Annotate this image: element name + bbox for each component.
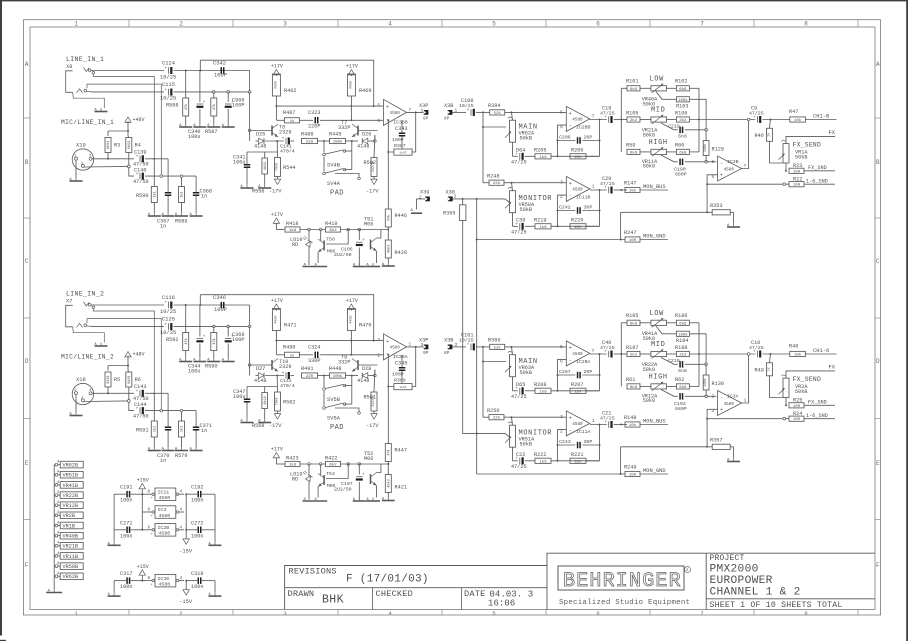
svg-text:2: 2	[711, 395, 714, 400]
svg-text:C342: C342	[213, 61, 226, 67]
svg-text:R205: R205	[534, 148, 546, 154]
svg-text:6n8: 6n8	[678, 368, 687, 374]
svg-text:R445: R445	[329, 132, 341, 138]
svg-text:PAD: PAD	[330, 190, 344, 198]
svg-text:R389: R389	[394, 378, 406, 384]
svg-text:1: 1	[592, 419, 595, 424]
svg-text:47/25: 47/25	[600, 181, 615, 187]
svg-text:4580: 4580	[159, 581, 171, 587]
svg-text:9P: 9P	[423, 351, 429, 356]
svg-text:Specialized Studio Equipment: Specialized Studio Equipment	[559, 599, 690, 607]
svg-text:5: 5	[560, 111, 563, 116]
svg-text:50kB: 50kB	[520, 207, 532, 213]
svg-text:F: F	[876, 562, 880, 569]
svg-text:6k81: 6k81	[127, 375, 132, 383]
svg-text:CHECKED: CHECKED	[376, 589, 414, 599]
svg-text:4580: 4580	[572, 188, 583, 193]
svg-text:47/25: 47/25	[600, 345, 615, 351]
svg-text:R147: R147	[624, 181, 636, 187]
svg-text:+: +	[569, 111, 572, 117]
svg-text:FX_SND: FX_SND	[808, 165, 827, 171]
svg-text:R470: R470	[359, 323, 371, 329]
svg-text:3: 3	[711, 409, 714, 414]
svg-text:1-6_SND: 1-6_SND	[806, 413, 828, 419]
svg-text:100P: 100P	[214, 73, 227, 79]
svg-text:1k6: 1k6	[539, 225, 547, 230]
svg-text:47/25: 47/25	[749, 111, 764, 117]
svg-text:+: +	[720, 407, 723, 413]
svg-text:2k2: 2k2	[630, 353, 638, 358]
svg-text:100k: 100k	[678, 98, 688, 103]
svg-text:3: 3	[560, 181, 563, 186]
svg-text:B: B	[25, 159, 29, 166]
svg-text:R587: R587	[205, 129, 217, 135]
svg-text:1k: 1k	[290, 353, 295, 358]
svg-text:20P: 20P	[584, 135, 593, 141]
svg-text:-: -	[569, 427, 572, 433]
svg-text:R589: R589	[175, 219, 187, 225]
svg-text:+: +	[151, 515, 153, 519]
svg-text:C219: C219	[668, 123, 680, 129]
svg-text:SV4B: SV4B	[327, 163, 341, 169]
svg-text:R101: R101	[626, 79, 638, 85]
svg-text:+: +	[151, 584, 153, 588]
svg-text:MIC/LINE_IN_1: MIC/LINE_IN_1	[61, 119, 114, 126]
svg-text:47k: 47k	[387, 215, 392, 221]
svg-text:47k: 47k	[212, 338, 217, 344]
svg-text:50kB: 50kB	[795, 389, 807, 395]
svg-text:IC3BA: IC3BA	[393, 354, 408, 360]
svg-text:A: A	[25, 61, 29, 68]
svg-text:8k2: 8k2	[329, 228, 337, 233]
svg-text:C: C	[876, 258, 880, 265]
svg-text:FX_SND: FX_SND	[808, 400, 827, 406]
svg-text:C116: C116	[162, 295, 175, 301]
svg-text:+: +	[569, 416, 572, 422]
svg-text:6k81: 6k81	[106, 375, 111, 383]
svg-text:VR51B: VR51B	[63, 473, 79, 479]
svg-text:220: 220	[306, 375, 314, 379]
svg-text:1uFF: 1uFF	[399, 152, 406, 155]
svg-text:C115: C115	[162, 82, 175, 88]
svg-text:E: E	[876, 460, 880, 467]
svg-text:R387: R387	[394, 143, 406, 149]
svg-text:3: 3	[560, 415, 563, 420]
svg-text:D: D	[876, 358, 880, 365]
svg-text:47k: 47k	[184, 338, 189, 344]
svg-text:VR2B: VR2B	[63, 513, 75, 519]
svg-text:R222: R222	[534, 452, 546, 458]
svg-text:4k99: 4k99	[348, 81, 353, 89]
svg-text:2: 2	[560, 195, 563, 200]
svg-text:-: -	[569, 357, 572, 363]
svg-text:IC2BA: IC2BA	[576, 359, 591, 365]
svg-text:2: 2	[419, 196, 422, 201]
svg-text:47/25: 47/25	[600, 416, 615, 422]
svg-text:1k8: 1k8	[289, 228, 297, 233]
svg-text:2k2: 2k2	[630, 118, 638, 123]
svg-text:1k1: 1k1	[153, 191, 158, 197]
svg-text:100P: 100P	[232, 103, 244, 109]
svg-text:C124: C124	[162, 61, 175, 67]
svg-text:5: 5	[560, 345, 563, 350]
svg-text:R501: R501	[364, 395, 376, 401]
svg-text:IC2B: IC2B	[158, 525, 170, 531]
svg-text:47/25: 47/25	[511, 464, 527, 470]
svg-text:R208: R208	[534, 382, 546, 388]
svg-text:4148: 4148	[254, 378, 266, 384]
svg-text:VR62B: VR62B	[63, 463, 79, 469]
svg-text:R185: R185	[626, 313, 638, 319]
svg-text:R62: R62	[675, 377, 684, 383]
svg-text:D: D	[25, 358, 29, 365]
svg-text:4580: 4580	[390, 111, 401, 116]
svg-text:4: 4	[388, 21, 392, 28]
svg-text:-: -	[569, 193, 572, 199]
svg-text:-17V: -17V	[366, 423, 379, 429]
svg-text:4k99: 4k99	[273, 81, 278, 89]
svg-text:E: E	[25, 460, 29, 467]
svg-text:R447: R447	[395, 448, 407, 454]
svg-text:10k: 10k	[794, 118, 802, 123]
svg-text:+: +	[386, 339, 389, 345]
svg-text:C346: C346	[213, 295, 226, 301]
svg-text:100: 100	[793, 418, 801, 422]
svg-text:PROJECT: PROJECT	[710, 554, 745, 563]
svg-text:MON_BUS: MON_BUS	[643, 184, 666, 190]
svg-text:R544: R544	[283, 165, 295, 171]
svg-text:R106: R106	[675, 110, 687, 116]
svg-text:50kB: 50kB	[520, 370, 532, 376]
svg-text:VR22B: VR22B	[63, 493, 79, 499]
svg-text:30P: 30P	[584, 439, 593, 445]
svg-text:B: B	[876, 159, 880, 166]
svg-text:R471: R471	[284, 323, 296, 329]
svg-text:+: +	[386, 104, 389, 110]
svg-text:50kB: 50kB	[795, 154, 807, 160]
svg-text:X7: X7	[66, 299, 72, 305]
svg-text:C206: C206	[559, 135, 571, 141]
svg-text:4k99: 4k99	[263, 396, 268, 404]
svg-text:4148: 4148	[254, 144, 266, 150]
svg-text:1k1: 1k1	[153, 426, 158, 432]
svg-text:R355: R355	[443, 211, 455, 217]
svg-text:100k: 100k	[333, 374, 343, 379]
svg-text:R502: R502	[364, 160, 376, 166]
svg-text:FX: FX	[829, 130, 836, 136]
svg-text:5: 5	[492, 21, 496, 28]
svg-text:1k1: 1k1	[180, 191, 185, 197]
svg-text:1k: 1k	[767, 367, 772, 371]
svg-text:+: +	[569, 181, 572, 187]
svg-text:R591: R591	[136, 428, 148, 434]
svg-text:CHANNEL 1 & 2: CHANNEL 1 & 2	[710, 587, 801, 599]
svg-text:SV5A: SV5A	[327, 416, 341, 422]
svg-text:LINE_IN_2: LINE_IN_2	[66, 291, 104, 298]
svg-text:4580: 4580	[390, 346, 401, 351]
svg-text:RD: RD	[292, 477, 298, 483]
svg-text:T53: T53	[326, 471, 335, 477]
svg-text:DATE: DATE	[464, 589, 485, 599]
svg-text:VR1B: VR1B	[63, 523, 75, 529]
svg-text:100u: 100u	[233, 394, 245, 400]
svg-text:50k0: 50k0	[643, 367, 655, 373]
svg-text:22k: 22k	[493, 181, 501, 186]
svg-text:10/25: 10/25	[160, 75, 176, 81]
svg-text:45k3: 45k3	[387, 245, 392, 253]
svg-text:SHEET 1 OF 10 SHEETS TOTAL: SHEET 1 OF 10 SHEETS TOTAL	[710, 601, 843, 610]
svg-text:HIGH: HIGH	[649, 374, 668, 382]
svg-text:7: 7	[700, 610, 703, 617]
svg-text:2329: 2329	[279, 130, 291, 136]
svg-text:100n: 100n	[191, 584, 203, 590]
svg-text:VR41B: VR41B	[63, 483, 79, 489]
svg-text:10k: 10k	[794, 353, 802, 358]
svg-text:2U2/50: 2U2/50	[334, 487, 352, 493]
svg-text:R419: R419	[325, 221, 337, 227]
svg-text:4580: 4580	[159, 531, 171, 537]
svg-text:5: 5	[492, 610, 495, 617]
svg-text:X18: X18	[76, 377, 86, 383]
svg-text:R4: R4	[135, 143, 141, 149]
svg-text:4148: 4148	[357, 378, 369, 384]
svg-text:1k: 1k	[290, 119, 295, 124]
svg-text:1: 1	[421, 109, 424, 114]
svg-text:4580: 4580	[159, 513, 171, 519]
svg-text:MON_GND: MON_GND	[643, 468, 666, 474]
svg-text:100u: 100u	[188, 134, 200, 140]
svg-text:10/25: 10/25	[160, 309, 176, 315]
svg-text:10k: 10k	[629, 189, 637, 194]
svg-text:22k: 22k	[574, 389, 582, 394]
svg-text:-17V: -17V	[366, 189, 379, 195]
svg-text:R420: R420	[395, 250, 407, 256]
svg-text:MON_BUS: MON_BUS	[643, 419, 666, 425]
svg-text:22k: 22k	[574, 225, 582, 230]
svg-text:VR21B: VR21B	[63, 544, 79, 550]
svg-text:1-6_SND: 1-6_SND	[806, 179, 828, 185]
svg-text:-17V: -17V	[269, 423, 282, 429]
svg-text:+48V: +48V	[133, 351, 145, 357]
svg-text:6: 6	[596, 21, 600, 28]
svg-text:IC11: IC11	[158, 489, 170, 495]
svg-text:C242: C242	[559, 205, 571, 211]
svg-text:A: A	[876, 61, 880, 68]
svg-text:R48: R48	[789, 344, 798, 350]
svg-text:+17V: +17V	[346, 298, 358, 304]
svg-text:6: 6	[560, 125, 563, 130]
svg-text:VR62B: VR62B	[63, 574, 79, 580]
svg-text:+: +	[151, 533, 153, 537]
svg-text:2: 2	[560, 430, 563, 435]
svg-text:4k99: 4k99	[263, 162, 268, 170]
svg-text:R221: R221	[571, 452, 583, 458]
svg-text:100P: 100P	[214, 307, 227, 313]
svg-text:-15V: -15V	[179, 599, 193, 605]
svg-text:3: 3	[421, 343, 424, 348]
svg-text:R353: R353	[710, 203, 722, 209]
svg-text:100n: 100n	[191, 533, 203, 539]
svg-text:D28: D28	[362, 366, 371, 372]
svg-text:R418: R418	[286, 221, 298, 227]
svg-text:LOW: LOW	[650, 310, 665, 318]
svg-text:47/25: 47/25	[511, 230, 527, 236]
svg-text:8: 8	[804, 21, 808, 28]
svg-text:100k: 100k	[703, 144, 708, 152]
svg-text:7: 7	[592, 114, 595, 119]
svg-text:6: 6	[377, 119, 380, 124]
svg-text:100P: 100P	[232, 337, 244, 343]
svg-text:1k6: 1k6	[539, 459, 547, 464]
svg-text:100n: 100n	[120, 584, 132, 590]
svg-text:1n: 1n	[201, 194, 207, 200]
svg-text:X3B: X3B	[444, 103, 453, 109]
svg-text:7: 7	[700, 21, 704, 28]
svg-text:100n: 100n	[120, 533, 132, 539]
svg-text:4580: 4580	[572, 118, 583, 123]
svg-text:6k8: 6k8	[679, 150, 687, 155]
svg-text:100: 100	[629, 239, 637, 243]
svg-text:7: 7	[592, 349, 595, 354]
svg-text:PMX2000: PMX2000	[710, 564, 759, 576]
svg-text:2U2/50: 2U2/50	[334, 252, 352, 258]
svg-text:R250: R250	[487, 408, 499, 414]
svg-text:10k: 10k	[629, 423, 637, 428]
svg-text:MON_GND: MON_GND	[643, 234, 666, 240]
svg-text:C219: C219	[668, 358, 680, 364]
svg-text:IC11B: IC11B	[576, 195, 591, 201]
svg-text:47/50: 47/50	[133, 414, 149, 420]
svg-text:R219: R219	[534, 218, 546, 224]
svg-text:30P: 30P	[584, 205, 593, 211]
svg-text:6: 6	[596, 610, 599, 617]
svg-text:R446: R446	[395, 213, 407, 219]
svg-text:R6: R6	[135, 377, 141, 383]
svg-text:680P: 680P	[675, 406, 687, 412]
svg-text:10/25: 10/25	[459, 103, 474, 109]
svg-text:8P: 8P	[444, 351, 450, 356]
svg-text:-17V: -17V	[269, 189, 282, 195]
svg-text:+17V: +17V	[271, 64, 283, 70]
svg-text:R60: R60	[675, 142, 684, 148]
svg-text:R590: R590	[205, 364, 217, 370]
svg-text:1n: 1n	[160, 224, 166, 230]
svg-text:76k8: 76k8	[275, 397, 280, 405]
svg-text:20P: 20P	[584, 369, 593, 375]
svg-text:R5: R5	[114, 377, 120, 383]
svg-text:6k8: 6k8	[679, 321, 687, 326]
svg-text:-: -	[569, 123, 572, 129]
svg-text:4k99: 4k99	[348, 315, 353, 323]
svg-text:2: 2	[377, 353, 380, 358]
svg-text:10/25: 10/25	[160, 96, 176, 102]
svg-text:2329: 2329	[279, 364, 291, 370]
svg-text:330P: 330P	[308, 358, 320, 364]
svg-text:R49: R49	[755, 367, 764, 373]
svg-text:9P: 9P	[423, 117, 429, 122]
svg-text:X3B: X3B	[444, 338, 453, 344]
svg-text:8k2: 8k2	[329, 463, 337, 468]
svg-text:F: F	[25, 562, 29, 569]
svg-text:+15V: +15V	[137, 477, 149, 483]
svg-text:MIC/LINE_IN_2: MIC/LINE_IN_2	[61, 354, 114, 361]
svg-text:100n: 100n	[120, 498, 132, 504]
svg-text:F (17/01/03): F (17/01/03)	[346, 574, 429, 586]
svg-text:R148: R148	[624, 415, 636, 421]
svg-text:RD: RD	[292, 242, 298, 248]
svg-text:100u: 100u	[188, 369, 200, 375]
svg-text:M06: M06	[364, 222, 373, 228]
svg-text:C345: C345	[395, 361, 407, 367]
svg-text:R103: R103	[676, 103, 688, 109]
svg-text:100k: 100k	[678, 332, 688, 337]
svg-text:50k0: 50k0	[643, 398, 655, 404]
svg-text:C191: C191	[120, 485, 132, 491]
svg-text:470/4: 470/4	[280, 149, 295, 155]
svg-text:22k: 22k	[574, 459, 582, 464]
svg-text:C192: C192	[191, 485, 203, 491]
svg-text:R590: R590	[136, 193, 148, 199]
svg-text:R247: R247	[624, 230, 636, 236]
svg-text:2k2: 2k2	[679, 353, 687, 358]
svg-text:6k8: 6k8	[630, 87, 638, 92]
svg-text:C243: C243	[559, 439, 571, 445]
svg-text:R130: R130	[712, 381, 724, 387]
svg-text:10/25: 10/25	[459, 338, 474, 344]
svg-text:1n: 1n	[160, 458, 166, 464]
svg-text:R556: R556	[252, 189, 264, 195]
svg-text:100n: 100n	[191, 498, 203, 504]
svg-text:1k6: 1k6	[539, 155, 547, 160]
svg-text:332P: 332P	[338, 360, 350, 366]
svg-text:6n8: 6n8	[678, 133, 687, 139]
svg-text:SV4A: SV4A	[327, 181, 341, 187]
svg-text:100k: 100k	[703, 378, 708, 386]
svg-text:X8: X8	[66, 64, 72, 70]
svg-text:C106: C106	[341, 247, 353, 253]
svg-text:CH1-6: CH1-6	[813, 348, 829, 354]
svg-text:680P: 680P	[675, 172, 687, 178]
svg-text:4580: 4580	[572, 352, 583, 357]
svg-text:1: 1	[74, 21, 78, 28]
svg-text:332P: 332P	[338, 125, 350, 131]
svg-text:6: 6	[560, 360, 563, 365]
svg-text:IC2BB: IC2BB	[576, 125, 591, 131]
svg-text:VR11B: VR11B	[63, 554, 79, 560]
svg-text:D26: D26	[362, 132, 371, 138]
svg-text:BHK: BHK	[322, 594, 344, 607]
svg-text:VR40B: VR40B	[63, 534, 79, 540]
svg-text:6k8: 6k8	[679, 385, 687, 390]
svg-text:4k99: 4k99	[273, 315, 278, 323]
svg-text:100: 100	[629, 474, 637, 478]
svg-text:4148: 4148	[357, 144, 369, 150]
svg-text:6: 6	[711, 160, 714, 165]
svg-text:FX_SEND: FX_SEND	[793, 142, 822, 149]
svg-text:1k6: 1k6	[539, 389, 547, 394]
svg-text:6k81: 6k81	[106, 141, 111, 149]
svg-text:MID: MID	[651, 341, 665, 349]
svg-text:R184: R184	[676, 338, 688, 344]
svg-text:+48V: +48V	[133, 117, 145, 123]
svg-text:+15V: +15V	[137, 564, 149, 570]
svg-text:6k8: 6k8	[630, 150, 638, 155]
svg-text:R61: R61	[626, 377, 635, 383]
svg-text:+17V: +17V	[271, 298, 283, 304]
svg-text:IC3BB: IC3BB	[393, 120, 408, 126]
svg-text:IC3A: IC3A	[727, 394, 739, 400]
svg-text:2: 2	[179, 610, 182, 617]
